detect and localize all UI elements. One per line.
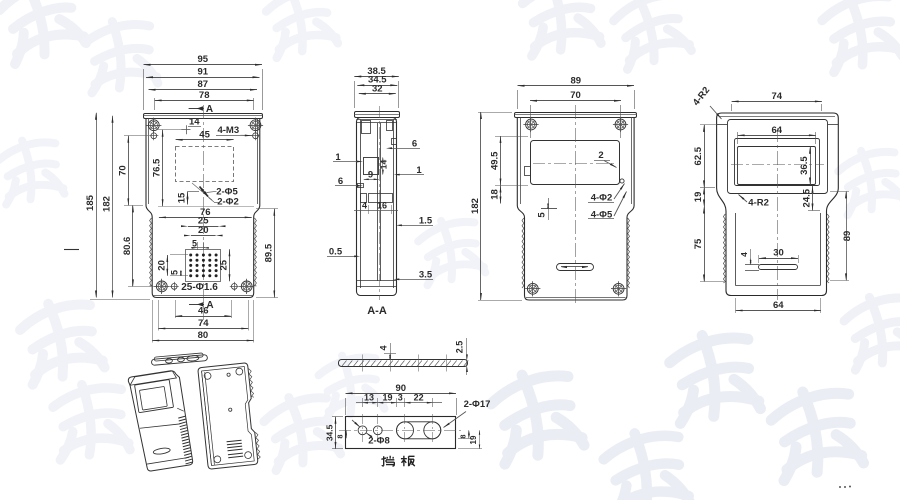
svg-text:16: 16: [377, 201, 387, 211]
svg-text:19: 19: [382, 393, 392, 403]
svg-text:0.5: 0.5: [329, 247, 343, 258]
svg-text:22: 22: [414, 393, 424, 403]
svg-text:25: 25: [219, 259, 230, 270]
svg-text:13: 13: [364, 393, 374, 403]
svg-text:19: 19: [693, 192, 704, 203]
svg-text:2: 2: [598, 150, 603, 161]
svg-text:4-Φ5: 4-Φ5: [591, 210, 613, 221]
svg-text:46: 46: [198, 306, 209, 317]
svg-text:A: A: [206, 104, 213, 115]
svg-text:2-Φ17: 2-Φ17: [464, 399, 491, 410]
svg-text:3: 3: [398, 393, 403, 403]
svg-text:20: 20: [198, 225, 209, 236]
svg-text:5: 5: [537, 212, 548, 218]
svg-text:14: 14: [189, 117, 200, 128]
svg-text:89: 89: [571, 75, 582, 86]
svg-text:2.5: 2.5: [455, 341, 465, 354]
svg-text:4: 4: [362, 201, 367, 211]
svg-text:182: 182: [102, 196, 113, 212]
svg-text:4: 4: [739, 252, 749, 257]
svg-text:95: 95: [198, 54, 209, 65]
svg-text:4-Φ2: 4-Φ2: [591, 193, 613, 204]
svg-text:20: 20: [156, 260, 167, 271]
svg-text:75: 75: [693, 238, 704, 249]
svg-text:91: 91: [198, 67, 209, 78]
svg-text:64: 64: [772, 125, 783, 136]
svg-text:5: 5: [192, 239, 197, 249]
svg-text:62.5: 62.5: [693, 146, 704, 165]
svg-text:4: 4: [379, 345, 389, 350]
svg-text:25-Φ1.6: 25-Φ1.6: [181, 282, 218, 293]
svg-text:3.5: 3.5: [419, 270, 433, 281]
svg-text:80.6: 80.6: [122, 237, 133, 256]
svg-text:87: 87: [198, 79, 209, 90]
svg-text:182: 182: [470, 198, 481, 214]
svg-text:64: 64: [773, 300, 784, 311]
svg-text:32: 32: [372, 83, 383, 94]
svg-text:8: 8: [459, 434, 468, 438]
svg-text:19: 19: [469, 435, 478, 444]
svg-text:45: 45: [199, 129, 210, 140]
svg-text:34.5: 34.5: [325, 424, 335, 441]
svg-text:4-R2: 4-R2: [748, 198, 769, 209]
svg-text:2-Φ2: 2-Φ2: [217, 196, 239, 207]
svg-text:74: 74: [198, 318, 209, 329]
svg-text:30: 30: [773, 248, 784, 259]
svg-text:36.5: 36.5: [799, 156, 810, 175]
svg-text:4-M3: 4-M3: [217, 125, 239, 136]
svg-text:70: 70: [570, 90, 581, 101]
svg-text:78: 78: [199, 90, 210, 101]
svg-text:185: 185: [85, 194, 96, 211]
svg-text:24.5: 24.5: [802, 188, 813, 207]
svg-text:15: 15: [177, 192, 188, 203]
svg-text:80: 80: [198, 330, 209, 341]
svg-text:70: 70: [117, 165, 128, 176]
svg-text:74: 74: [772, 91, 783, 102]
svg-text:8: 8: [336, 434, 345, 438]
svg-text:18: 18: [490, 189, 501, 200]
svg-text:89: 89: [842, 231, 853, 242]
svg-text:1.5: 1.5: [419, 216, 433, 227]
svg-text:49.5: 49.5: [490, 151, 501, 170]
svg-text:89.5: 89.5: [263, 243, 274, 262]
svg-text:6: 6: [412, 139, 417, 150]
svg-text:A-A: A-A: [367, 305, 387, 317]
svg-text:76.5: 76.5: [152, 158, 163, 177]
svg-text:5: 5: [170, 270, 180, 275]
